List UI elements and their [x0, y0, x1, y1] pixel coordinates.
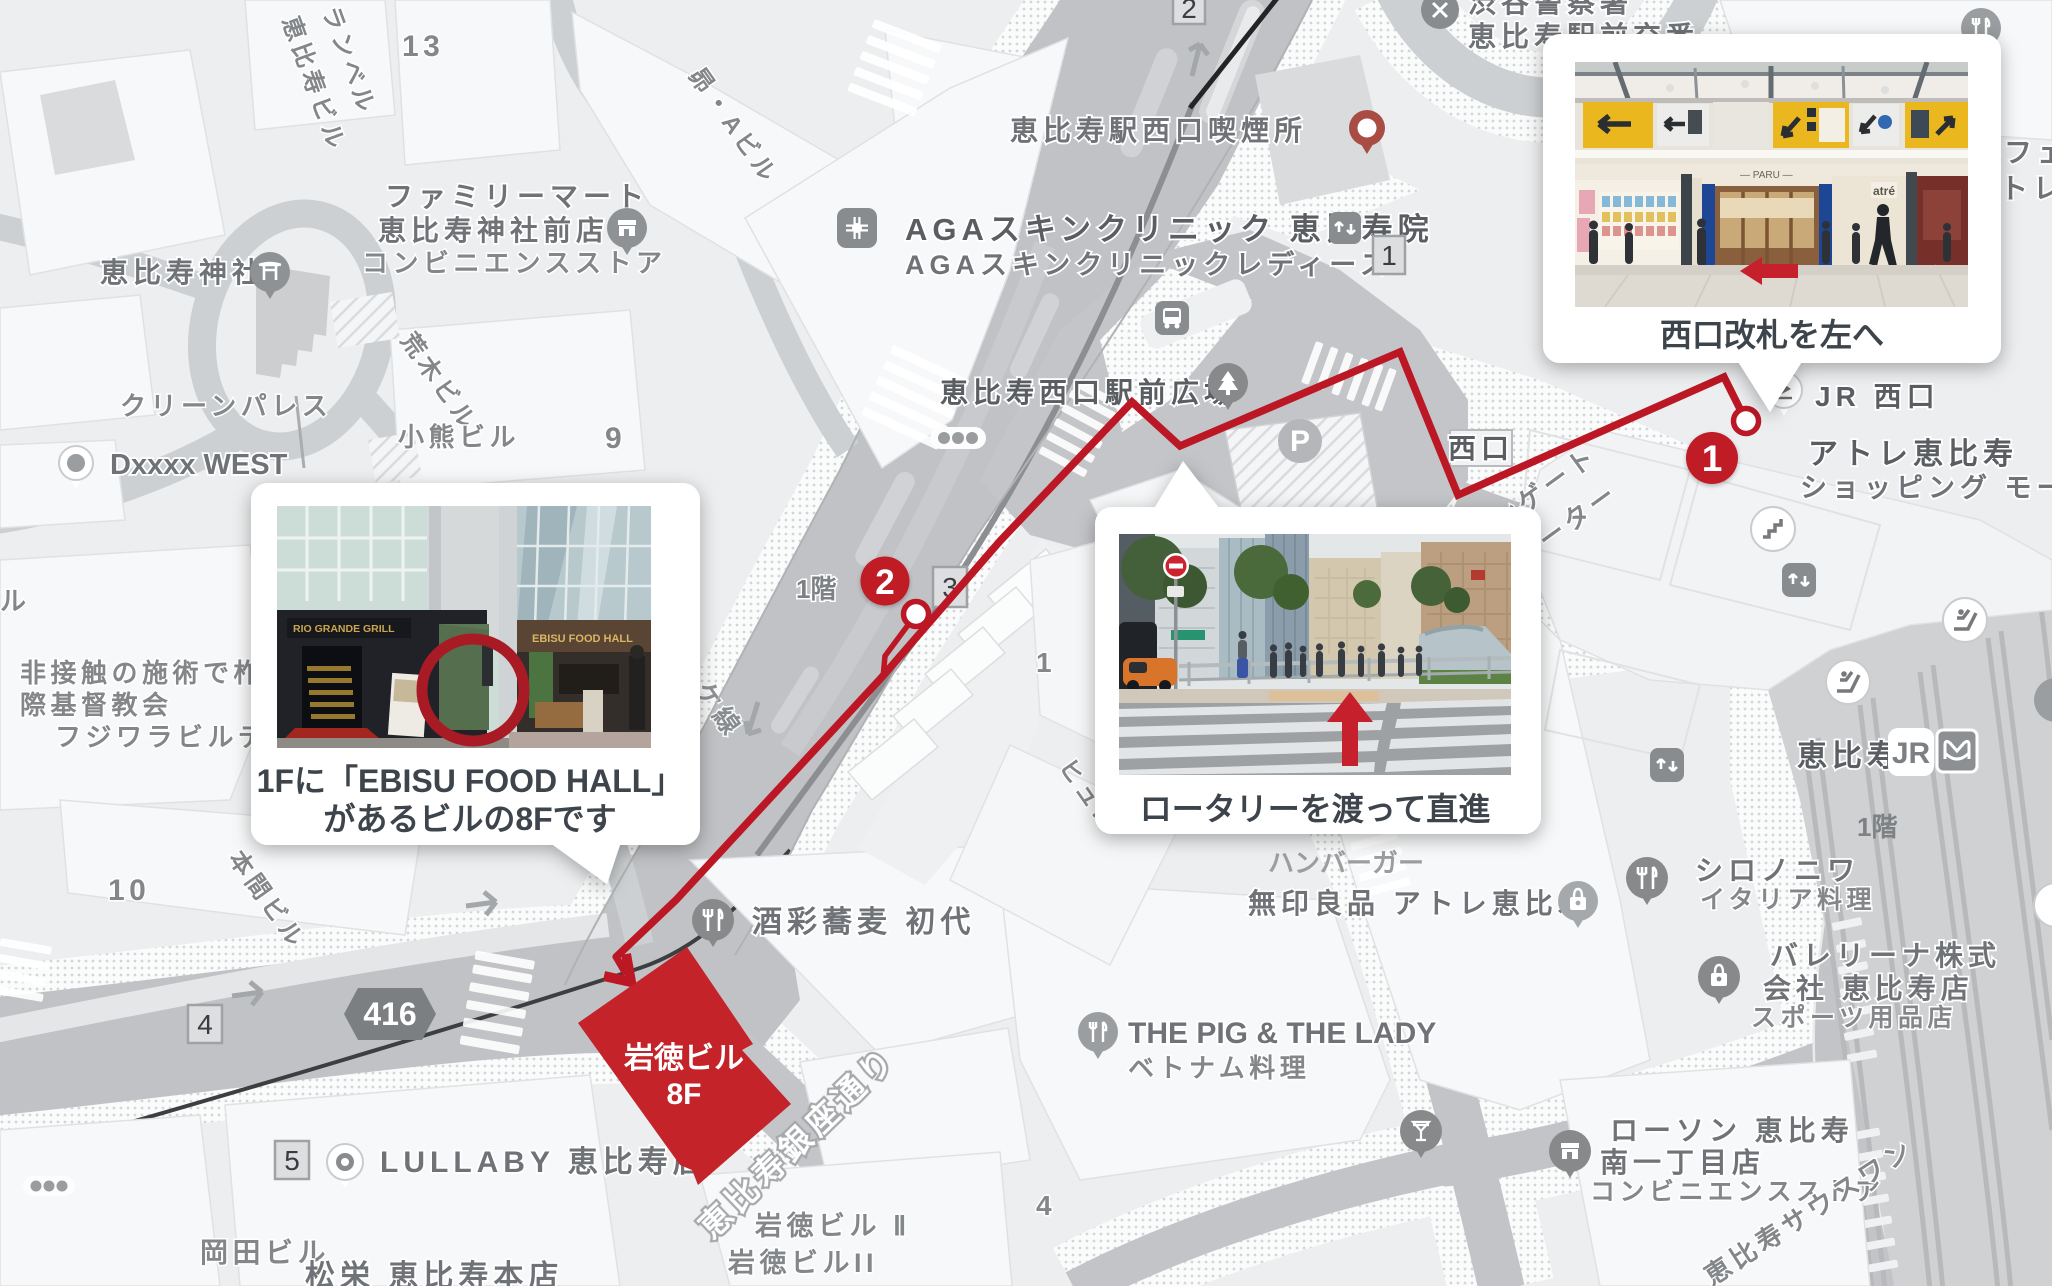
svg-text:AGAスキンクリニックレディース: AGAスキンクリニックレディース: [905, 249, 1392, 280]
svg-text:ショッピング モール: ショッピング モール: [1800, 472, 2052, 503]
svg-text:ハンバーガー: ハンバーガー: [1268, 848, 1424, 878]
svg-text:EBISU FOOD HALL: EBISU FOOD HALL: [532, 633, 633, 645]
svg-text:シロノニワ: シロノニワ: [1695, 855, 1860, 886]
svg-text:416: 416: [363, 996, 416, 1032]
svg-text:ル: ル: [0, 586, 31, 616]
svg-text:ファミリーマート: ファミリーマート: [385, 181, 649, 212]
svg-text:コンビニエンスストア: コンビニエンスストア: [362, 248, 666, 278]
svg-text:Dxxxx WEST: Dxxxx WEST: [110, 449, 288, 481]
svg-text:THE PIG & THE LADY: THE PIG & THE LADY: [1128, 1017, 1436, 1050]
svg-text:トレ..: トレ..: [2000, 173, 2052, 204]
svg-text:JR: JR: [1892, 737, 1931, 770]
svg-text:P: P: [1290, 425, 1310, 458]
svg-text:1階: 1階: [796, 574, 836, 604]
svg-text:松栄 恵比寿本店: 松栄 恵比寿本店: [305, 1259, 563, 1286]
svg-text:恵比寿駅西口喫煙所: 恵比寿駅西口喫煙所: [1010, 115, 1307, 146]
svg-text:RIO GRANDE GRILL: RIO GRANDE GRILL: [293, 623, 395, 635]
svg-text:会社 恵比寿店: 会社 恵比寿店: [1763, 973, 1974, 1004]
svg-text:岩徳ビル: 岩徳ビル: [624, 1042, 744, 1075]
svg-text:9: 9: [605, 422, 626, 455]
svg-text:JR 西口: JR 西口: [1815, 381, 1940, 412]
svg-text:1Fに「EBISU FOOD HALL」: 1Fに「EBISU FOOD HALL」: [257, 763, 684, 799]
svg-text:1: 1: [1381, 240, 1397, 271]
svg-text:酒彩蕎麦 初代: 酒彩蕎麦 初代: [752, 906, 975, 939]
svg-text:渋谷警察署: 渋谷警察署: [1468, 0, 1633, 18]
svg-text:ローソン 恵比寿: ローソン 恵比寿: [1610, 1115, 1854, 1146]
svg-text:バレリーナ株式: バレリーナ株式: [1770, 940, 2001, 971]
svg-text:2: 2: [875, 563, 894, 602]
svg-text:ロータリーを渡って直進: ロータリーを渡って直進: [1140, 791, 1490, 827]
svg-text:1階: 1階: [1857, 812, 1897, 842]
svg-text:クリーンパレス: クリーンパレス: [120, 391, 332, 421]
svg-text:1: 1: [1702, 438, 1723, 479]
svg-text:恵比寿: 恵比寿: [1797, 739, 1902, 773]
svg-text:5: 5: [284, 1145, 300, 1176]
svg-text:13: 13: [402, 30, 444, 63]
svg-text:atré: atré: [1873, 184, 1895, 198]
svg-text:岩徳ビルII: 岩徳ビルII: [727, 1248, 878, 1278]
svg-text:非接触の施術で柞: 非接触の施術で柞: [20, 658, 264, 688]
svg-text:ベトナム料理: ベトナム料理: [1128, 1053, 1310, 1083]
svg-text:フェ: フェ: [2004, 137, 2052, 168]
svg-text:— PARU —: — PARU —: [1740, 170, 1793, 181]
svg-text:LULLABY 恵比寿店: LULLABY 恵比寿店: [380, 1145, 708, 1179]
svg-text:岩徳ビル Ⅱ: 岩徳ビル Ⅱ: [754, 1211, 911, 1241]
svg-text:南一丁目店: 南一丁目店: [1600, 1147, 1765, 1178]
svg-text:恵比寿西口駅前広場: 恵比寿西口駅前広場: [940, 376, 1237, 408]
svg-text:1: 1: [1036, 647, 1056, 678]
svg-text:があるビルの8Fです: があるビルの8Fです: [323, 801, 616, 837]
svg-text:西口改札を左へ: 西口改札を左へ: [1660, 317, 1884, 353]
svg-text:スポーツ用品店: スポーツ用品店: [1751, 1003, 1957, 1032]
svg-text:2: 2: [1181, 0, 1197, 24]
svg-text:無印良品 アトレ恵比寿: 無印良品 アトレ恵比寿: [1248, 887, 1591, 919]
svg-text:イタリア料理: イタリア料理: [1700, 886, 1876, 914]
svg-text:10: 10: [108, 874, 150, 907]
svg-text:8F: 8F: [666, 1078, 701, 1111]
svg-text:西口: 西口: [1448, 433, 1514, 464]
svg-text:4: 4: [1036, 1190, 1056, 1221]
svg-text:恵比寿神社前店: 恵比寿神社前店: [378, 214, 609, 246]
svg-text:アトレ恵比寿: アトレ恵比寿: [1808, 437, 2018, 471]
svg-text:4: 4: [197, 1009, 213, 1040]
svg-text:際基督教会: 際基督教会: [20, 690, 173, 720]
svg-text:小熊ビル: 小熊ビル: [398, 422, 520, 452]
svg-text:恵比寿神社: 恵比寿神社: [100, 257, 265, 288]
